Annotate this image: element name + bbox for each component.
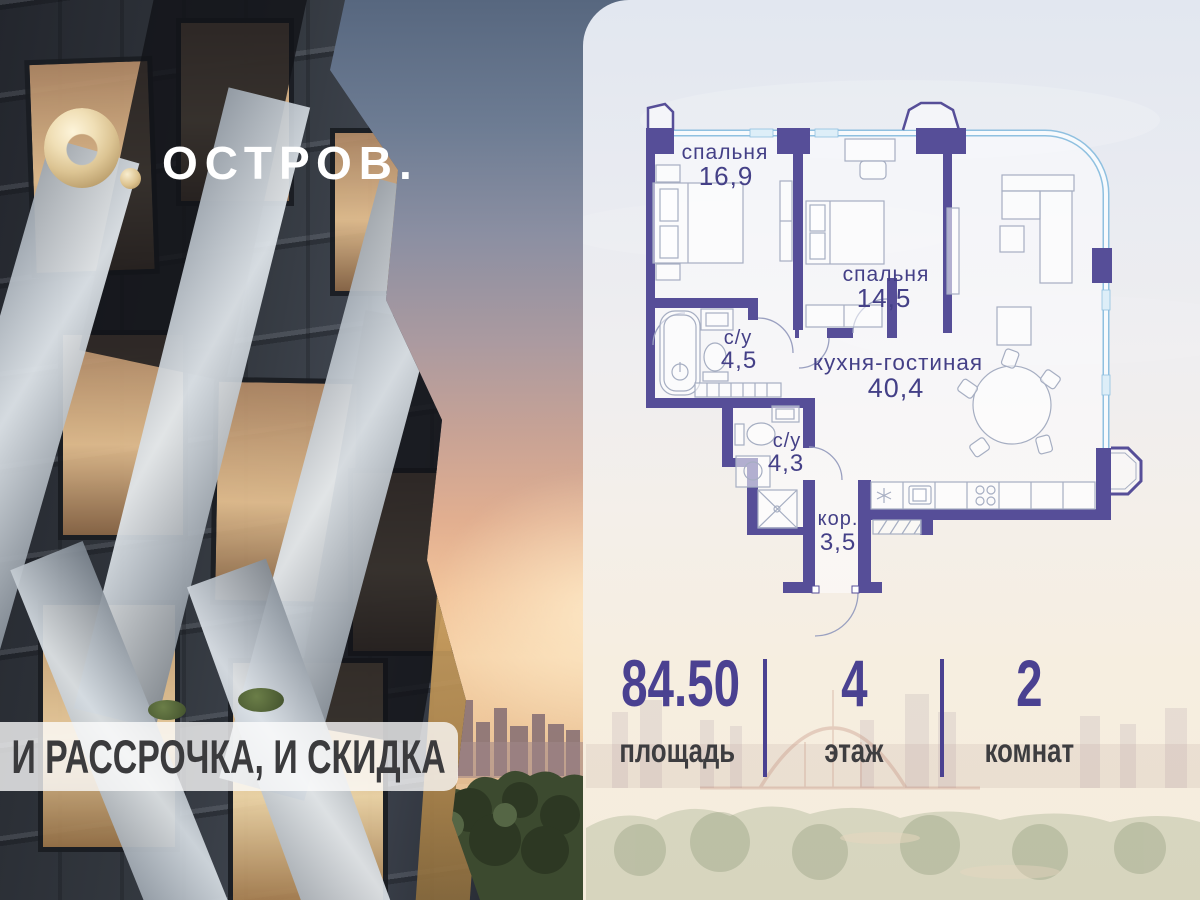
stat-floor-label: этаж xyxy=(824,732,883,770)
stat-divider xyxy=(763,659,767,777)
stat-floor: 4 этаж xyxy=(792,652,916,770)
stat-rooms-value: 2 xyxy=(1016,652,1042,714)
promo-banner[interactable]: И РАССРОЧКА, И СКИДКА xyxy=(0,722,458,791)
balcony-plant xyxy=(238,688,284,712)
stat-divider xyxy=(940,659,944,777)
stat-floor-value: 4 xyxy=(841,652,867,714)
promo-page: ОСТРОВ. И РАССРОЧКА, И СКИДКА xyxy=(0,0,1200,900)
stat-area-label: площадь xyxy=(619,732,735,770)
stat-rooms: 2 комнат xyxy=(967,652,1091,770)
logo-dot-icon xyxy=(120,168,141,189)
promo-banner-text: И РАССРОЧКА, И СКИДКА xyxy=(12,729,446,784)
balcony-plant xyxy=(148,700,186,720)
logo-ring-icon xyxy=(44,108,120,188)
faded-trees xyxy=(586,806,1200,900)
brand-name: ОСТРОВ. xyxy=(162,136,419,190)
stat-area: 84.50 площадь xyxy=(598,652,756,770)
stat-area-value: 84.50 xyxy=(621,652,740,714)
stat-rooms-label: комнат xyxy=(984,732,1073,770)
